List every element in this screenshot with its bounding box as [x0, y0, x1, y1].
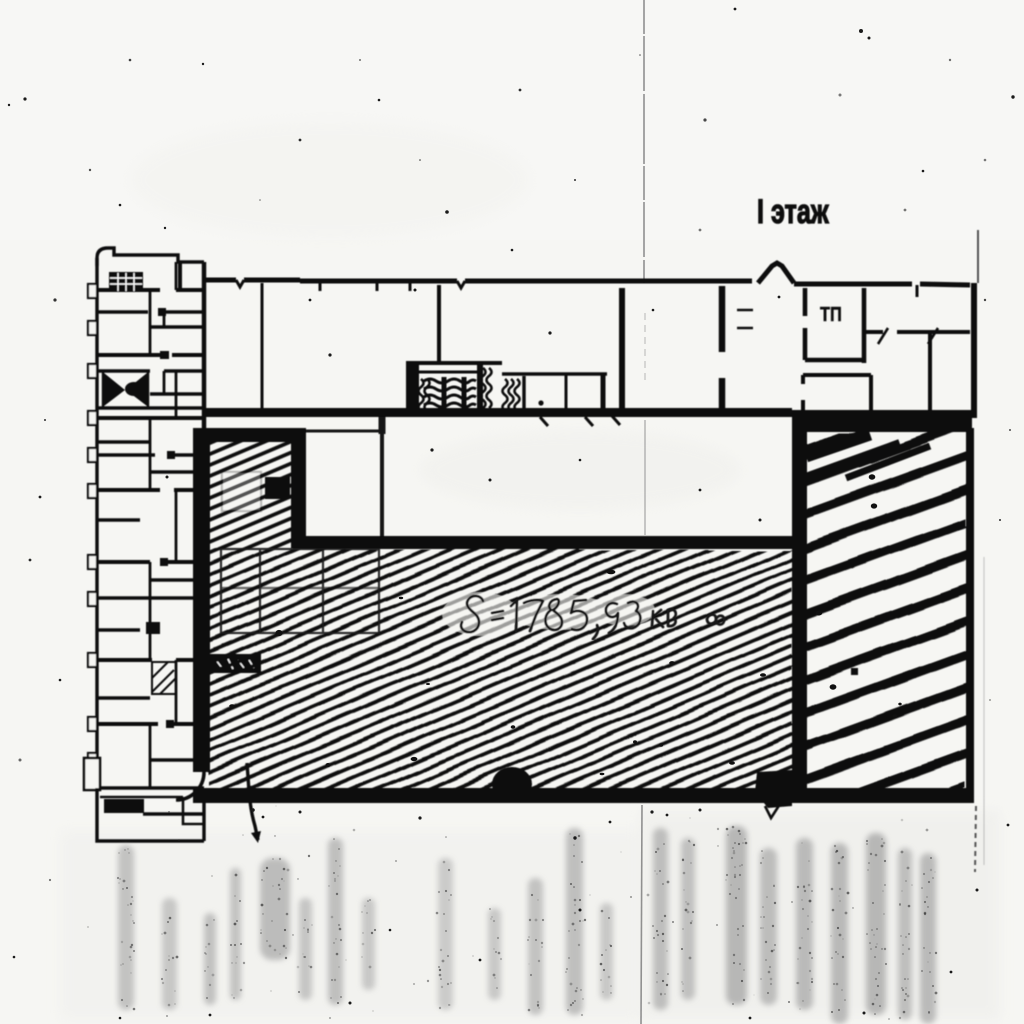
svg-text:ТП: ТП [820, 302, 842, 325]
svg-text:I этаж: I этаж [757, 193, 829, 231]
